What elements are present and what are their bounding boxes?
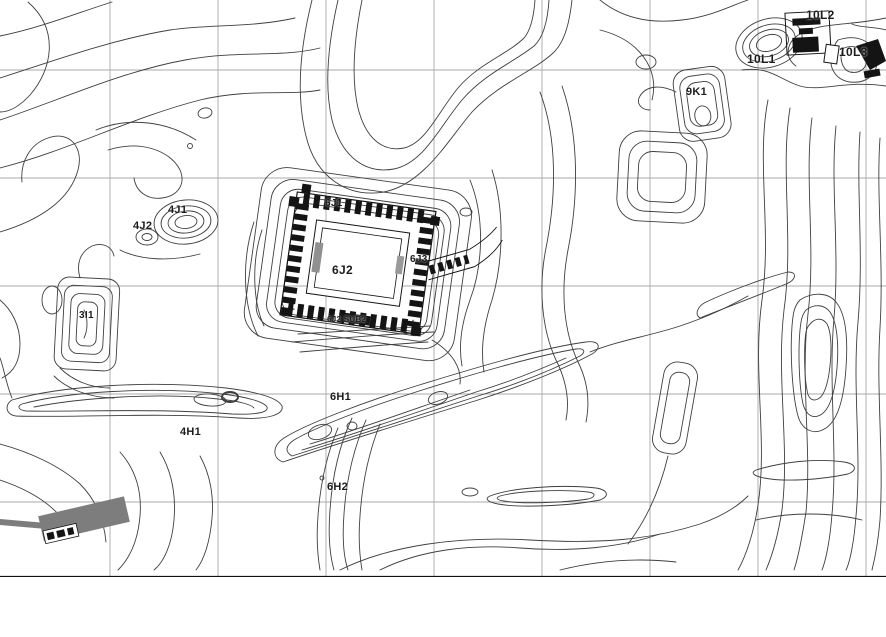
map-sheet: 10L210L110L39K14J14J26J16J26J36J2 SUB23I… [0,0,886,637]
topographic-map [0,0,886,577]
structures [0,11,886,544]
structure-10l2-annex [824,44,839,64]
contour-lines [0,0,886,570]
coordinate-grid [0,0,886,577]
map-area: 10L210L110L39K14J14J26J16J26J36J2 SUB23I… [0,0,886,577]
title-block-strip: N Escala Gráfica 0m10m20m30m40m50m E: 1/… [0,577,886,637]
structure-edge-east [856,39,886,70]
